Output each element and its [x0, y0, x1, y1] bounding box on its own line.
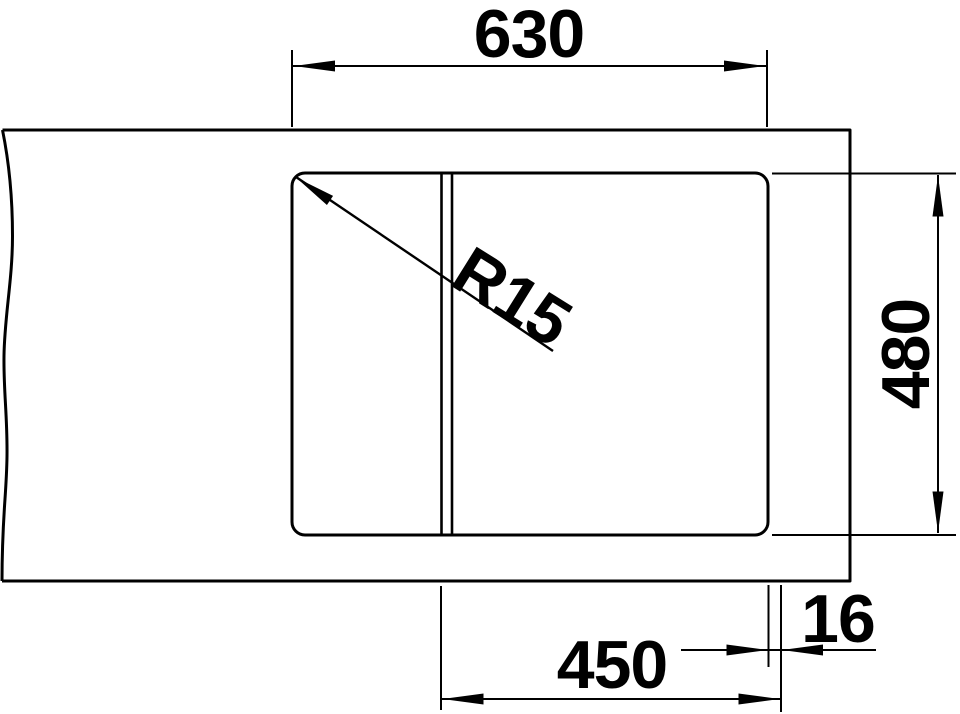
- worktop-outline: [2, 130, 850, 581]
- sink-cutout-outline: [292, 173, 768, 535]
- dim-label-top-width: 630: [474, 0, 584, 72]
- dim-16-arrowhead-left: [727, 645, 768, 656]
- technical-drawing-canvas: 630 480 450 16 R15: [0, 0, 960, 714]
- dim-label-side-height: 480: [868, 299, 944, 409]
- dim-450-arrowhead-left: [443, 694, 484, 705]
- dim-480-arrowhead-top: [933, 176, 944, 217]
- dim-label-bottom-width: 450: [557, 627, 667, 703]
- dim-630-arrowhead-right: [724, 61, 765, 72]
- dim-480-arrowhead-bottom: [933, 492, 944, 533]
- sink-dimension-drawing: 630 480 450 16 R15: [0, 0, 960, 714]
- dim-630-arrowhead-left: [294, 61, 335, 72]
- dim-450-arrowhead-right: [739, 694, 780, 705]
- dim-label-corner-radius: R15: [440, 232, 584, 361]
- dim-label-edge-offset: 16: [801, 581, 875, 657]
- worktop-break-line: [2, 130, 13, 581]
